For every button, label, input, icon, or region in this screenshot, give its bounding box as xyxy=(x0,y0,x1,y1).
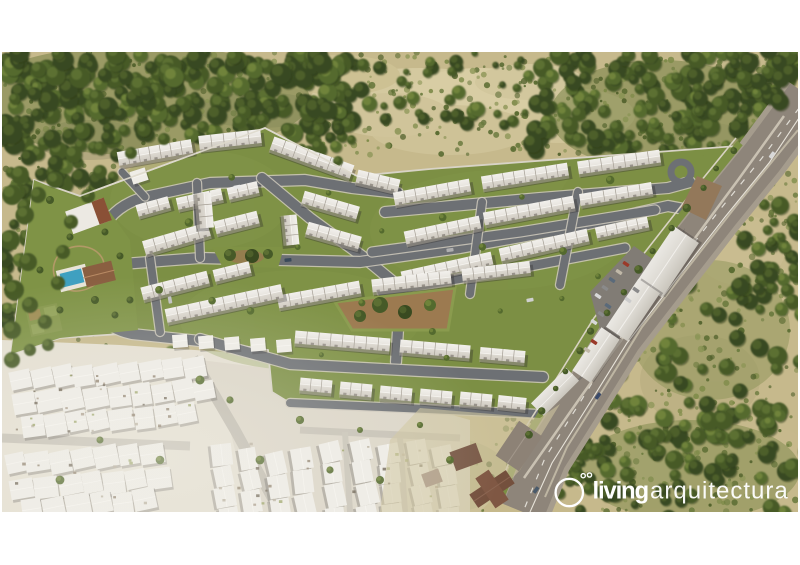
svg-text:living: living xyxy=(593,478,649,505)
svg-text:arquitectura: arquitectura xyxy=(650,478,789,505)
